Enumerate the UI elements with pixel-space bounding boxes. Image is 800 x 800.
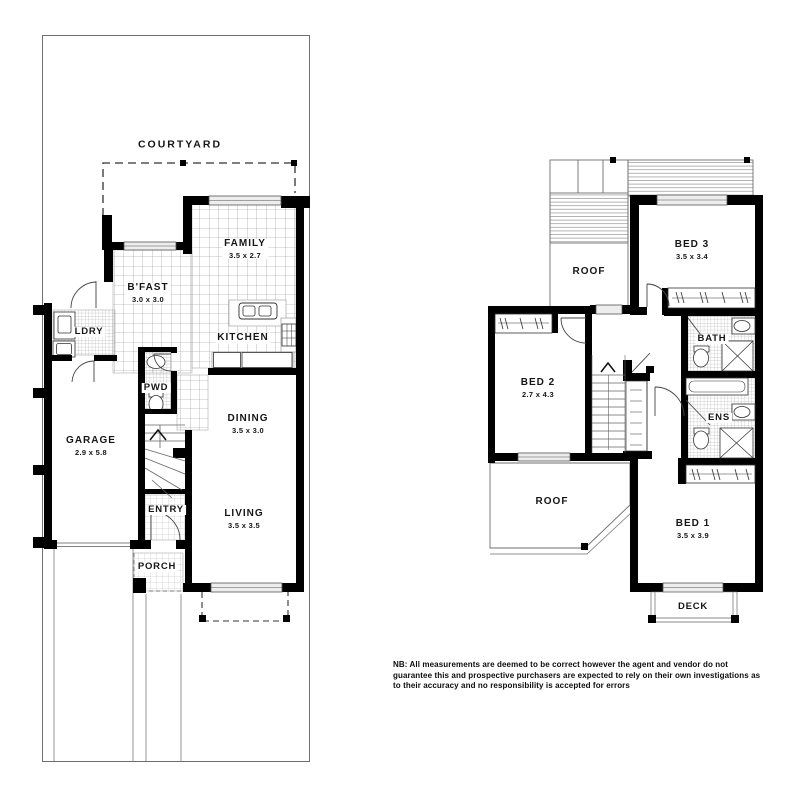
garage-door — [57, 543, 130, 547]
linen-cupboard — [626, 381, 647, 451]
bed2-robe — [495, 314, 552, 333]
label-bfast: B'FAST 3.0 x 3.0 — [125, 283, 170, 303]
label-ens: ENS — [706, 413, 732, 423]
label-pwd: PWD — [142, 383, 171, 393]
label-ldry: LDRY — [73, 327, 106, 337]
label-bed2: BED 2 2.7 x 4.3 — [521, 378, 555, 398]
cooktop — [282, 324, 296, 346]
label-deck: DECK — [678, 602, 708, 612]
label-bath: BATH — [696, 334, 729, 344]
stairs-up-arrow — [601, 363, 615, 372]
roof-lower-outline — [490, 463, 632, 554]
label-dining: DINING 3.5 x 3.0 — [228, 414, 269, 434]
upper-stairs — [592, 355, 625, 453]
disclaimer-text: NB: All measurements are deemed to be co… — [393, 660, 783, 692]
label-bed1: BED 1 3.5 x 3.9 — [676, 519, 710, 539]
label-family: FAMILY 3.5 x 2.7 — [222, 239, 268, 259]
roof-upper-outline — [550, 160, 753, 310]
patio-dashed-boundary — [199, 592, 290, 622]
label-porch: PORCH — [136, 562, 178, 572]
ground-stairs — [145, 425, 185, 498]
floorplan-page: COURTYARD FAMILY 3.5 x 2.7 B'FAST 3.0 x … — [0, 0, 800, 800]
label-roof-upper: ROOF — [573, 267, 606, 278]
label-roof-lower: ROOF — [536, 497, 569, 508]
label-courtyard: COURTYARD — [138, 139, 222, 150]
label-kitchen: KITCHEN — [215, 333, 270, 344]
label-living: LIVING 3.5 x 3.5 — [224, 509, 263, 529]
stairs-up-arrow — [150, 430, 166, 440]
label-entry: ENTRY — [146, 505, 186, 515]
label-garage: GARAGE 2.9 x 5.8 — [66, 436, 116, 456]
label-bed3: BED 3 3.5 x 3.4 — [675, 240, 709, 260]
